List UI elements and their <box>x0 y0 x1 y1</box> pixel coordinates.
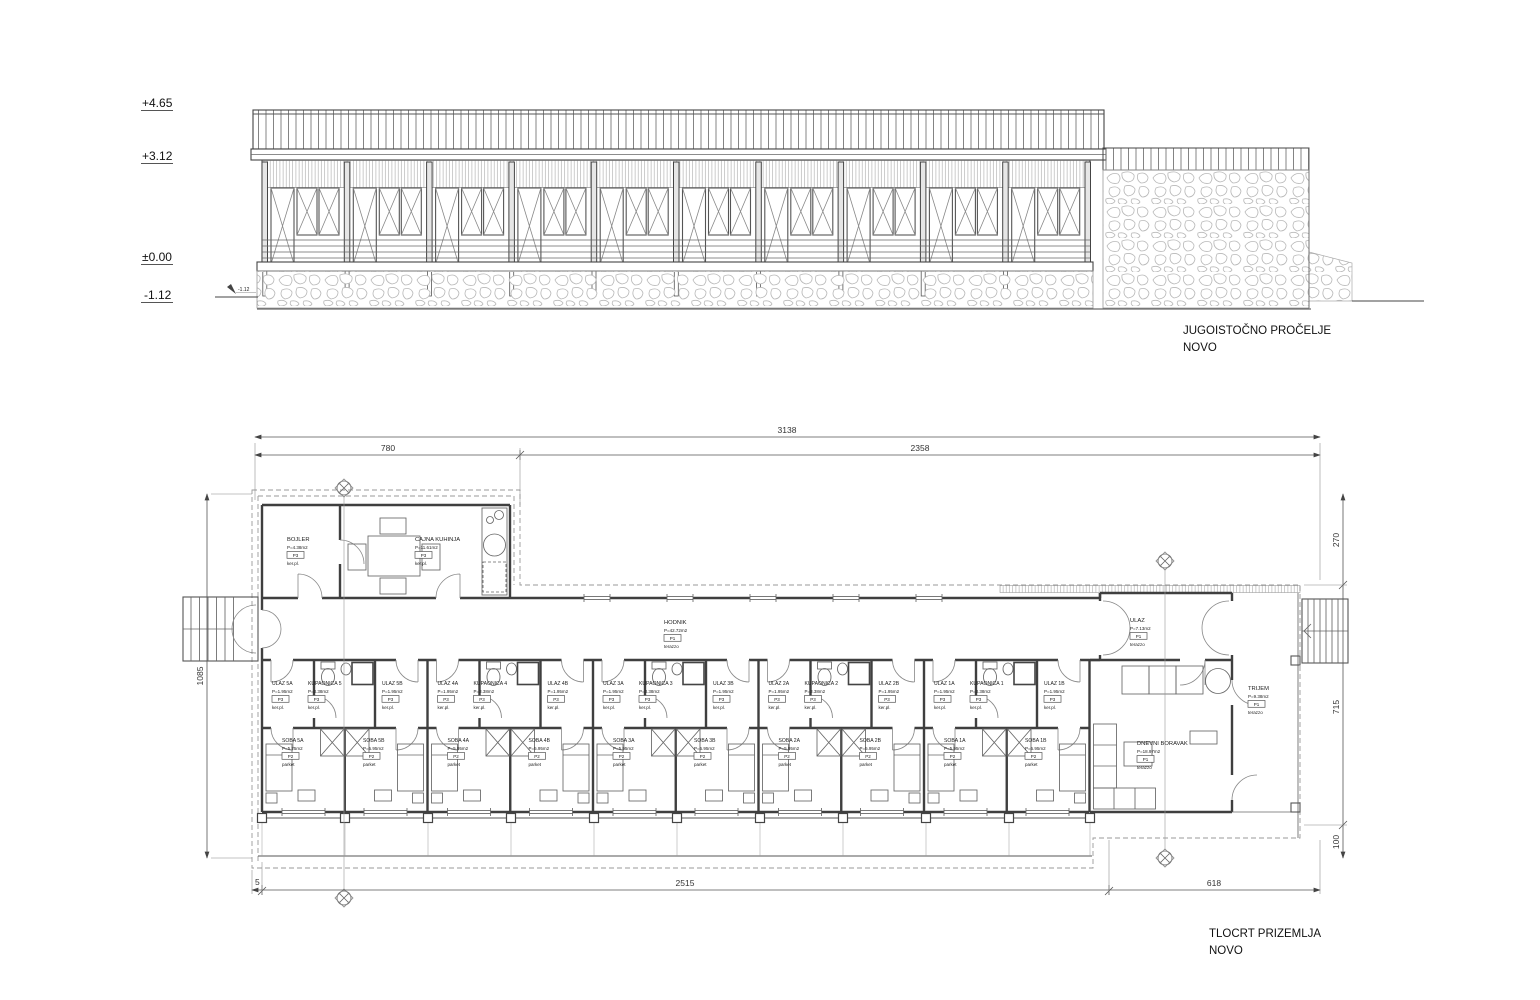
level-label: +4.65 <box>142 96 173 110</box>
dim-right-top: 270 <box>1331 533 1341 547</box>
room-label-code: P3 <box>314 697 320 702</box>
dim-right-span: 2358 <box>911 443 930 453</box>
room-label-area: P=9.38m2 <box>1248 694 1269 699</box>
room-label-name: SOBA 1B <box>1025 738 1047 744</box>
room-label-code: P2 <box>950 754 956 759</box>
room-label-code: P1 <box>1143 757 1149 762</box>
room-label-code: P3 <box>719 697 725 702</box>
room-label-area: P=5.95m2 <box>694 746 715 751</box>
room-label-code: P3 <box>609 697 615 702</box>
room-label-name: ULAZ 4A <box>438 681 459 687</box>
level-label: -1.12 <box>144 288 172 302</box>
dim-right-bot: 100 <box>1331 835 1341 849</box>
room-label-floor: ker.pl. <box>603 705 615 710</box>
main-roof <box>253 110 1104 149</box>
room-label-name: KUPAONICA 4 <box>474 681 508 687</box>
room-label-area: P=3.38m2 <box>474 689 495 694</box>
room-label-area: P=5.95m2 <box>860 746 881 751</box>
room-label-floor: ker.pl. <box>308 705 320 710</box>
living-room-furniture <box>1094 666 1231 809</box>
annex-roof <box>1103 148 1309 170</box>
room-label-floor: ker.pl. <box>415 561 427 566</box>
room-label-area: P=3.38m2 <box>308 689 329 694</box>
room-label-name: SOBA 3A <box>613 738 635 744</box>
room-label-code: P2 <box>700 754 706 759</box>
room-label-floor: parket <box>448 762 461 767</box>
room-label-floor: parket <box>1025 762 1038 767</box>
room-label-floor: ker.pl. <box>934 705 946 710</box>
room-label-code: P1 <box>1136 634 1142 639</box>
room-label-code: P3 <box>884 697 890 702</box>
room-label-floor: parket <box>694 762 707 767</box>
room-label-code: P2 <box>784 754 790 759</box>
room-label-area: P=5.95m2 <box>529 746 550 751</box>
room-label-code: P3 <box>645 697 651 702</box>
ground-arrow-icon <box>227 284 236 294</box>
room-label-area: P=1.95m2 <box>769 689 790 694</box>
room-label-floor: parket <box>860 762 873 767</box>
dim-left-span: 780 <box>381 443 395 453</box>
plan-subtitle: NOVO <box>1209 945 1243 957</box>
room-label-area: P=42.72m2 <box>664 628 688 633</box>
room-label-area: P=11.61m2 <box>415 545 438 550</box>
stair-west <box>183 597 258 661</box>
level-label: +3.12 <box>142 149 173 163</box>
room-label-floor: ker.pl. <box>970 705 982 710</box>
elevation-subtitle: NOVO <box>1183 342 1217 354</box>
room-label-area: P=5.95m2 <box>363 746 384 751</box>
elevation-title: JUGOISTOČNO PROČELJE <box>1183 324 1331 337</box>
room-label-area: P=3.38m2 <box>970 689 991 694</box>
drawing-canvas: +4.65 +3.12 ±0.00 -1.12 <box>0 0 1540 1000</box>
room-label-name: SOBA 4A <box>448 738 470 744</box>
annex-stone-wall <box>1103 170 1309 308</box>
elevation-level-labels: +4.65 +3.12 ±0.00 -1.12 <box>141 96 173 303</box>
room-label-name: TRIJEM <box>1248 686 1269 692</box>
dim-total: 3138 <box>778 425 797 435</box>
room-label-floor: ker.pl. <box>805 705 817 710</box>
terrace <box>258 814 1095 857</box>
room-label-area: P=5.95m2 <box>1025 746 1046 751</box>
room-label-name: ULAZ 4B <box>548 681 569 687</box>
corridor <box>262 593 1100 660</box>
room-label-area: P=3.38m2 <box>805 689 826 694</box>
room-label-floor: parket <box>779 762 792 767</box>
architectural-drawing-sheet: +4.65 +3.12 ±0.00 -1.12 <box>0 0 1540 1000</box>
room-label-code: P2 <box>453 754 459 759</box>
room-label-area: P=5.75m2 <box>282 746 303 751</box>
room-label-code: P2 <box>619 754 625 759</box>
room-label-code: P3 <box>810 697 816 702</box>
room-label-code: P2 <box>369 754 375 759</box>
living-room <box>1090 660 1257 812</box>
entrance-room <box>1100 593 1232 660</box>
ground-mark-label: -1.12 <box>238 287 250 293</box>
room-label-floor: parket <box>529 762 542 767</box>
entrance-roof-strip <box>1000 586 1300 593</box>
room-label-floor: terazzo <box>664 644 679 649</box>
room-label-area: P=4.38m2 <box>287 545 308 550</box>
deck-edge <box>257 262 1093 271</box>
room-label-floor: ker.pl. <box>382 705 394 710</box>
room-label-area: P=1.95m2 <box>272 689 293 694</box>
room-label-floor: parket <box>613 762 626 767</box>
room-label-area: P=1.95m2 <box>1044 689 1065 694</box>
room-label-name: ULAZ 1A <box>934 681 955 687</box>
room-label-code: P3 <box>940 697 946 702</box>
room-label-code: P3 <box>553 697 559 702</box>
room-label-floor: parket <box>282 762 295 767</box>
room-label-code: P2 <box>288 754 294 759</box>
room-label-name: SOBA 5B <box>363 738 385 744</box>
room-label-code: P2 <box>1031 754 1037 759</box>
room-label-code: P2 <box>534 754 540 759</box>
room-label-floor: terazzo <box>1137 765 1152 770</box>
room-label-floor: ker.pl. <box>287 561 299 566</box>
room-label-code: P3 <box>443 697 449 702</box>
room-label-area: P=1.95m2 <box>382 689 403 694</box>
dim-bottom-small: 5 <box>255 877 260 887</box>
room-label-area: P=1.95m2 <box>603 689 624 694</box>
room-label-name: KUPAONICA 1 <box>970 681 1004 687</box>
room-label-name: KUPAONICA 2 <box>805 681 839 687</box>
room-label-name: SOBA 3B <box>694 738 716 744</box>
room-label-name: CAJNA KUHINJA <box>415 537 460 543</box>
room-label-code: P1 <box>1254 702 1260 707</box>
room-label-name: BOJLER <box>287 537 310 543</box>
room-label-name: ULAZ 3B <box>713 681 734 687</box>
room-label-name: ULAZ 3A <box>603 681 624 687</box>
room-label-area: P=1.95m2 <box>879 689 900 694</box>
room-label-area: P=3.38m2 <box>639 689 660 694</box>
room-label-name: SOBA 2A <box>779 738 801 744</box>
room-label-area: P=5.95m2 <box>779 746 800 751</box>
dim-bottom-right: 618 <box>1207 878 1221 888</box>
room-label-area: P=1.95m2 <box>438 689 459 694</box>
room-label-name: SOBA 2B <box>860 738 882 744</box>
room-label-name: ULAZ 5B <box>382 681 403 687</box>
kitchen-counter <box>482 508 507 595</box>
room-label-floor: ker.pl. <box>879 705 891 710</box>
floor-plan-drawing: 3138 780 2358 1085 270 715 100 5 2515 61… <box>183 425 1348 957</box>
stone-retaining-wedge <box>1309 252 1352 301</box>
room-label-floor: terazzo <box>1248 710 1263 715</box>
room-labels: BOJLERP=4.38m2P3ker.pl.CAJNA KUHINJAP=11… <box>272 537 1269 770</box>
room-label-floor: terazzo <box>1130 642 1145 647</box>
room-label-code: P1 <box>670 636 676 641</box>
room-label-code: P3 <box>1050 697 1056 702</box>
room-label-area: P=5.95m2 <box>448 746 469 751</box>
plan-title: TLOCRT PRIZEMLJA <box>1209 928 1321 940</box>
room-label-name: DNEVNI BORAVAK <box>1137 741 1188 747</box>
room-label-area: P=18.97m2 <box>1137 749 1161 754</box>
room-label-name: ULAZ 1B <box>1044 681 1065 687</box>
elevation-drawing: +4.65 +3.12 ±0.00 -1.12 <box>141 96 1424 354</box>
room-label-area: P=1.95m2 <box>934 689 955 694</box>
room-label-area: P=1.95m2 <box>548 689 569 694</box>
room-label-name: SOBA 4B <box>529 738 551 744</box>
room-label-name: KUPAONICA 5 <box>308 681 342 687</box>
room-label-floor: ker.pl. <box>548 705 560 710</box>
room-label-name: ULAZ 2B <box>879 681 900 687</box>
room-label-name: ULAZ 2A <box>769 681 790 687</box>
room-label-code: P3 <box>388 697 394 702</box>
room-label-name: ULAZ 5A <box>272 681 293 687</box>
room-label-code: P3 <box>293 553 299 558</box>
room-label-code: P3 <box>479 697 485 702</box>
room-label-area: P=5.95m2 <box>613 746 634 751</box>
room-label-area: P=5.95m2 <box>944 746 965 751</box>
room-label-code: P3 <box>421 553 427 558</box>
room-label-code: P2 <box>865 754 871 759</box>
room-label-floor: ker.pl. <box>713 705 725 710</box>
room-label-name: SOBA 1A <box>944 738 966 744</box>
level-label: ±0.00 <box>142 250 172 264</box>
room-label-area: P=1.95m2 <box>713 689 734 694</box>
room-label-floor: ker.pl. <box>639 705 651 710</box>
porch <box>1232 593 1300 838</box>
room-label-area: P=7.13m2 <box>1130 626 1151 631</box>
dim-height: 1085 <box>195 666 205 685</box>
dim-bottom-main: 2515 <box>676 878 695 888</box>
stair-east <box>1302 599 1348 663</box>
room-label-floor: parket <box>363 762 376 767</box>
room-label-floor: ker.pl. <box>1044 705 1056 710</box>
room-label-floor: ker.pl. <box>272 705 284 710</box>
room-label-name: HODNIK <box>664 620 687 626</box>
room-label-floor: parket <box>944 762 957 767</box>
room-label-code: P3 <box>278 697 284 702</box>
room-label-floor: ker.pl. <box>769 705 781 710</box>
room-label-name: SOBA 5A <box>282 738 304 744</box>
dim-right-mid: 715 <box>1331 700 1341 714</box>
stone-base <box>257 271 1093 308</box>
room-label-floor: ker.pl. <box>438 705 450 710</box>
room-label-name: KUPAONICA 3 <box>639 681 673 687</box>
room-label-code: P3 <box>774 697 780 702</box>
room-label-code: P3 <box>976 697 982 702</box>
room-label-floor: ker.pl. <box>474 705 486 710</box>
room-label-name: ULAZ <box>1130 618 1145 624</box>
